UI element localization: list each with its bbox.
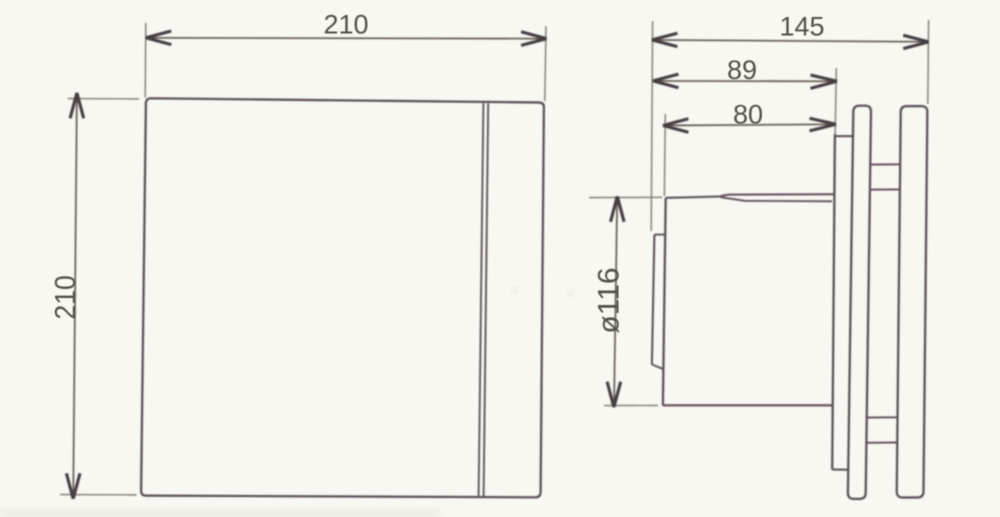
svg-text:ø116: ø116 xyxy=(593,267,626,333)
svg-text:89: 89 xyxy=(727,55,757,85)
svg-text:210: 210 xyxy=(49,275,81,320)
svg-text:145: 145 xyxy=(779,12,824,42)
svg-text:80: 80 xyxy=(733,100,763,130)
svg-text:210: 210 xyxy=(323,10,368,40)
